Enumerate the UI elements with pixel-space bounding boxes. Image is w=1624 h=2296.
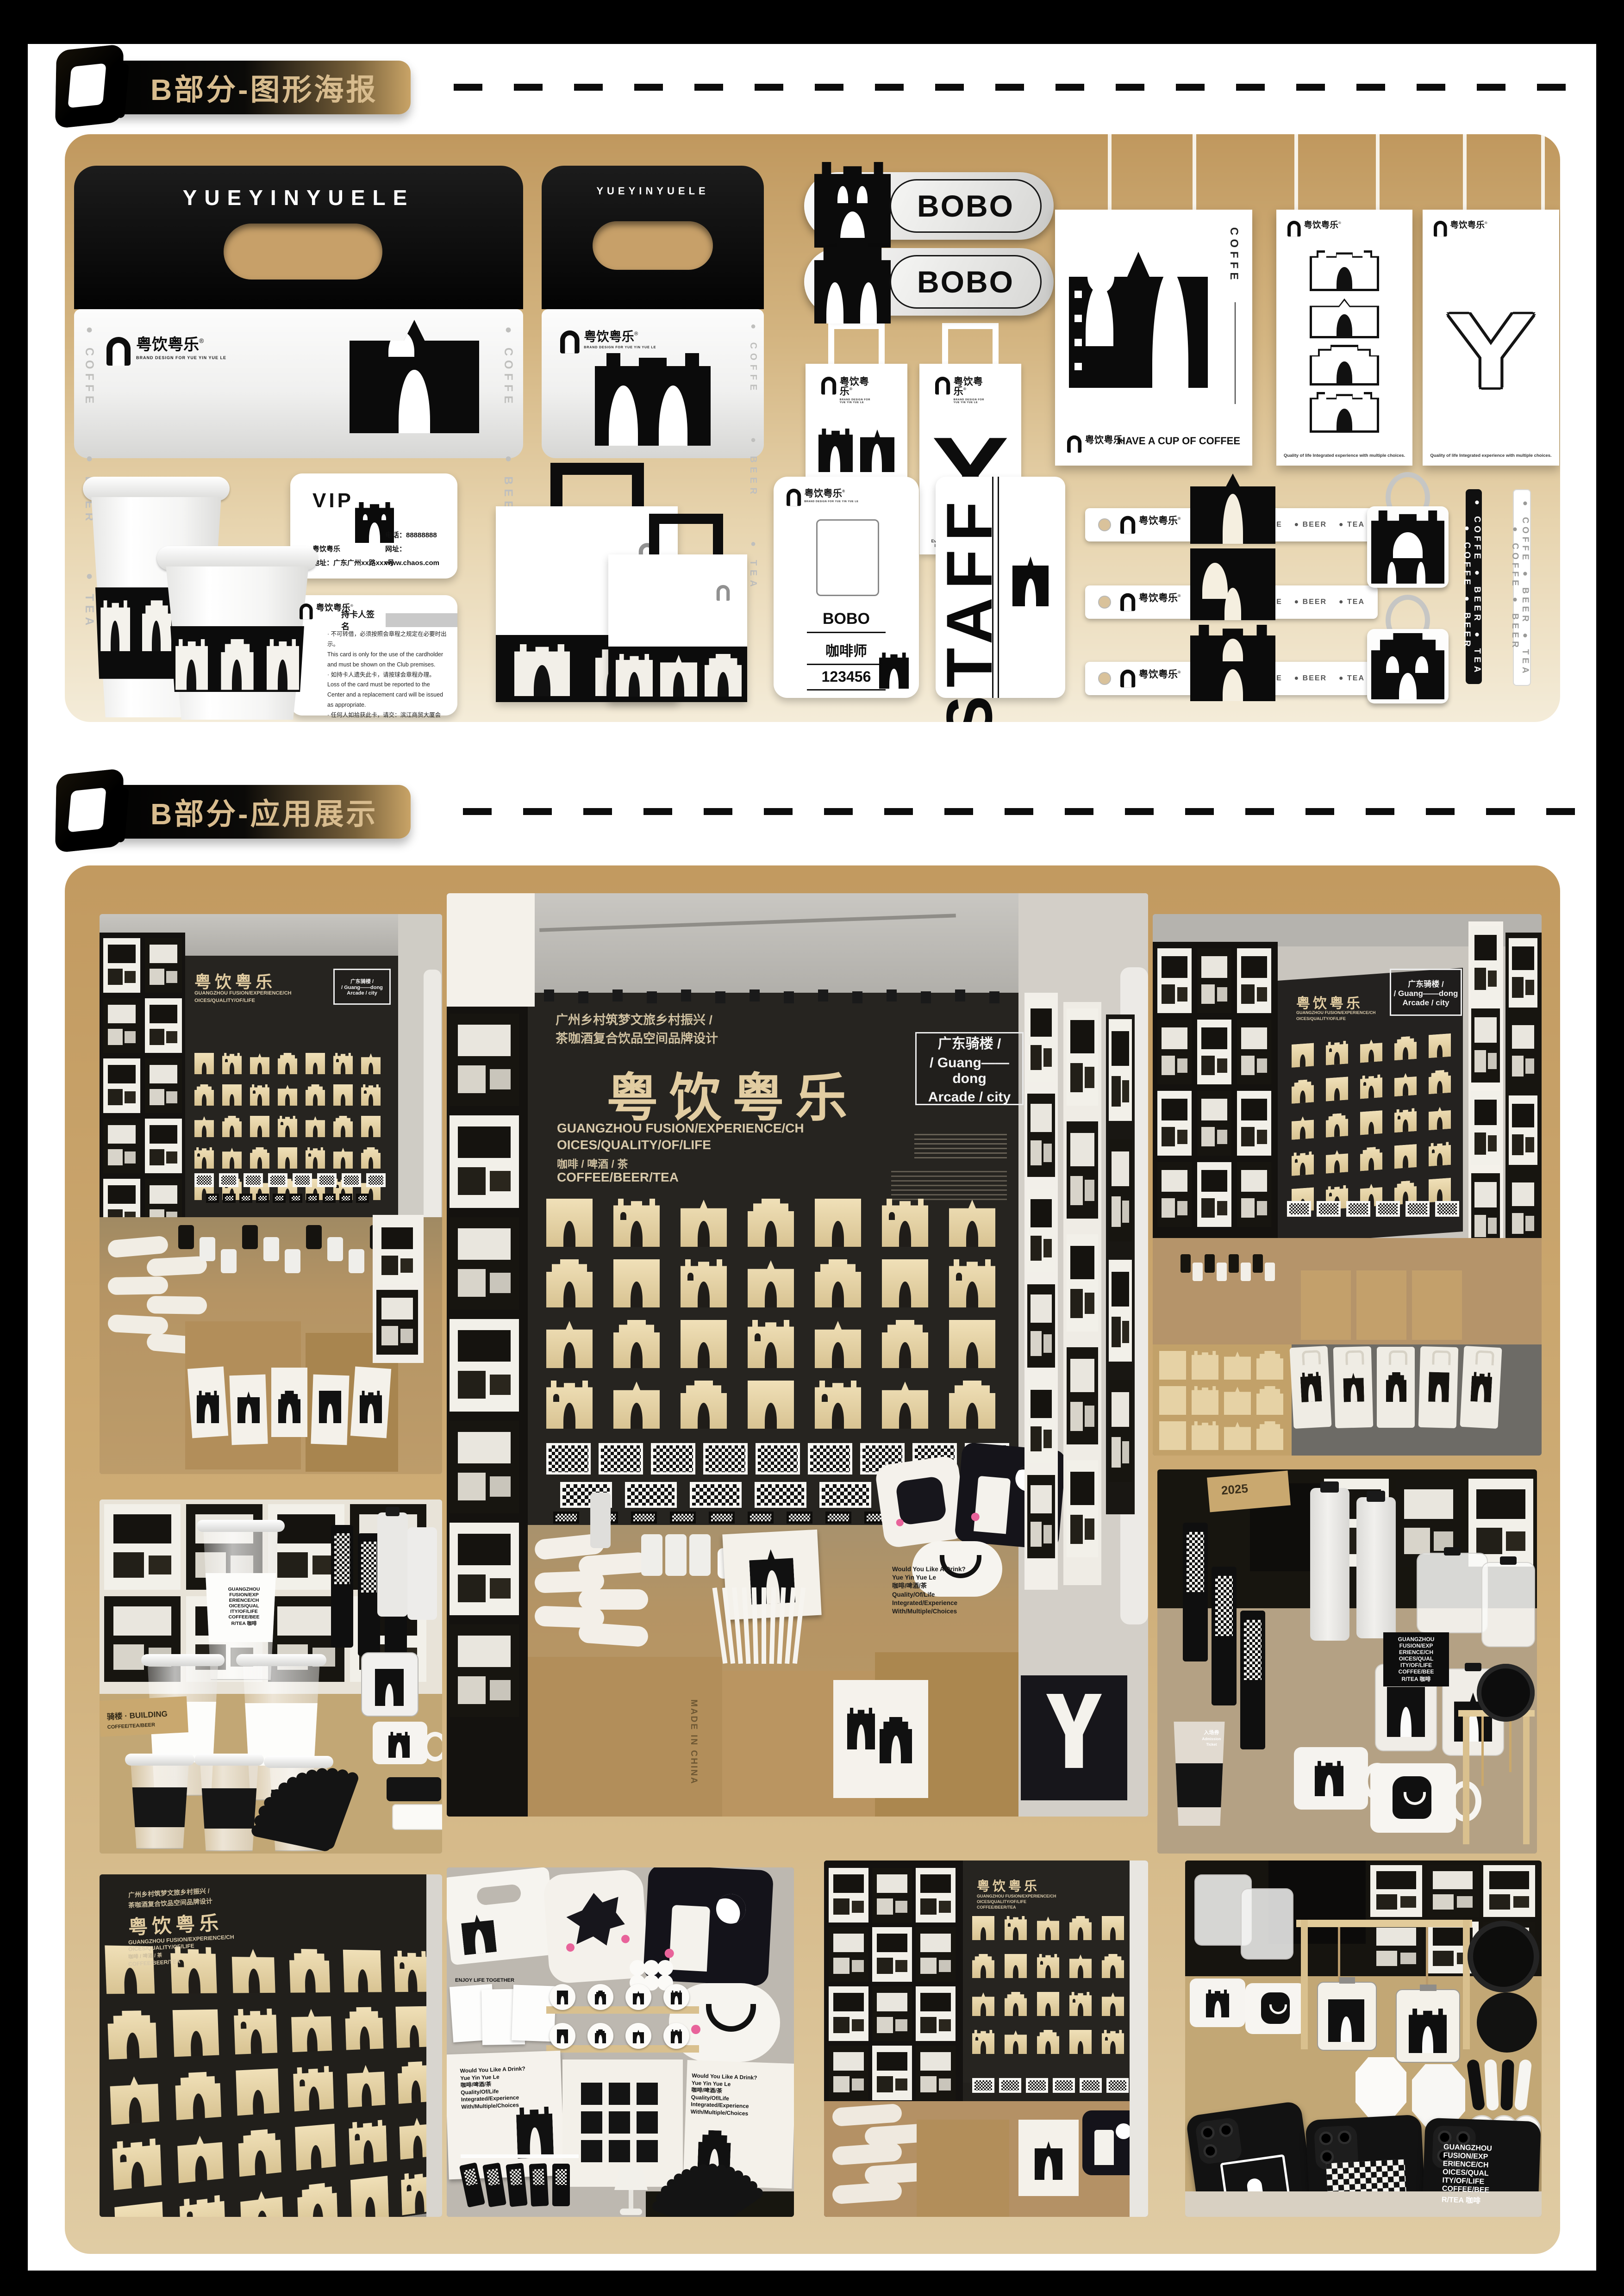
- bookmark: [1183, 1523, 1208, 1661]
- poster-block: [852, 2019, 864, 2031]
- wood-building-tile: [306, 1084, 325, 1106]
- carrier-handle-hole: [593, 221, 713, 270]
- building-shape: [350, 317, 479, 433]
- poster-block: [939, 1960, 951, 1972]
- arch-opening: [561, 2035, 564, 2043]
- arcade-tagbox: 广东骑楼 / / Guang——dong Arcade / city: [1390, 969, 1462, 1016]
- pattern-fill: [242, 1196, 250, 1201]
- arch-opening: [363, 514, 368, 520]
- hanging-string: [1463, 134, 1467, 213]
- mug-mascot: [1245, 1983, 1305, 2034]
- wood-building-tile: [1102, 1954, 1124, 1978]
- pattern-fill: [789, 1514, 810, 1521]
- tile-window: [197, 1153, 200, 1157]
- pattern-card: [787, 1512, 812, 1524]
- wood-building-tile: [291, 2008, 332, 2052]
- registered-mark: ®: [634, 330, 638, 336]
- paper-bag: [1289, 1346, 1331, 1429]
- wood-building-tile: [333, 1116, 353, 1137]
- poster-block: [1525, 1058, 1534, 1074]
- enjoy-card-title: ENJOY LIFE TOGETHER: [455, 1978, 514, 1983]
- pattern-fill: [549, 1445, 588, 1472]
- button-badge: [550, 2023, 575, 2049]
- binder-clip: [818, 989, 828, 1002]
- building-shape: [1312, 394, 1377, 430]
- arch-opening: [673, 672, 684, 697]
- mini-poster: [376, 1220, 418, 1284]
- poster-block: [490, 1069, 511, 1089]
- bookmark: [358, 1533, 380, 1656]
- poster-block: [1404, 1489, 1453, 1519]
- wood-building-tile: [349, 2120, 387, 2165]
- black-plate: [1477, 1992, 1537, 2053]
- pattern-fill: [974, 2080, 992, 2091]
- tile-window: [364, 1090, 366, 1094]
- wood-building-tile: [1394, 1144, 1417, 1169]
- poster-block: [166, 1031, 177, 1043]
- poster-block: [150, 1089, 164, 1105]
- small-product: [349, 1249, 364, 1273]
- carrier-body: 粤饮粤乐® BRAND DESIGN FOR YUE YIN YUE LE ● …: [542, 309, 764, 458]
- wood-building-tile: [972, 1916, 994, 1940]
- poster-block: [833, 2017, 849, 2033]
- twine: [1481, 1717, 1484, 1786]
- bag-handle: [1302, 1350, 1321, 1365]
- poster-block: [277, 1514, 335, 1543]
- wood-piece: [1159, 1421, 1186, 1450]
- tile-window: [620, 1212, 626, 1220]
- poster-block: [1513, 1896, 1529, 1908]
- arch-logo-icon: [935, 377, 950, 394]
- wood-piece: [1159, 1351, 1186, 1380]
- wall-logo: 粤饮粤乐: [977, 1876, 1040, 1895]
- pattern-fill: [275, 1196, 283, 1201]
- small-product: [306, 1225, 322, 1249]
- poster-block: [852, 2078, 864, 2091]
- pattern-fill: [822, 1484, 869, 1506]
- arch-opening: [1341, 2016, 1351, 2042]
- wood-building-tile: [361, 1084, 381, 1106]
- arch-opening: [1393, 532, 1422, 558]
- pattern-card: [808, 1443, 852, 1475]
- building-shape: [879, 653, 909, 689]
- pattern-card: [194, 1173, 214, 1187]
- arch-opening: [1337, 314, 1352, 336]
- tile-window: [1398, 1115, 1400, 1119]
- arch-opening: [1478, 1384, 1485, 1402]
- arch-logo-icon: [1287, 221, 1301, 236]
- tile-arch: [698, 1342, 710, 1368]
- tile-arch: [194, 2155, 207, 2181]
- small-product: [327, 1237, 343, 1261]
- arch-opening: [826, 282, 843, 324]
- mini-poster: [1067, 1347, 1098, 1444]
- bag-handle: [1345, 1350, 1364, 1365]
- carrier-hole: [476, 1884, 521, 1906]
- tile-window: [1073, 1999, 1075, 2003]
- poster-block: [1525, 980, 1534, 995]
- poster-block: [1162, 1056, 1175, 1075]
- poster-block: [895, 1960, 907, 1972]
- wood-building-tile: [1394, 1108, 1417, 1132]
- poster-block: [877, 1874, 907, 1893]
- cup-band: [1175, 1763, 1224, 1807]
- arch-opening: [1387, 562, 1396, 584]
- mini-castle-icon: [1012, 555, 1049, 606]
- cup-print-band: [169, 626, 306, 692]
- poster-block: [1031, 1199, 1052, 1227]
- poster-block: [1512, 946, 1534, 970]
- tile-arch: [361, 2083, 371, 2106]
- drinks-vertical-left: ● COFFE ● BEER ● TEA: [82, 323, 96, 453]
- tile-arch: [256, 2210, 268, 2217]
- mini-poster: [450, 1014, 519, 1106]
- tile-arch: [409, 2025, 419, 2047]
- poster-block: [1474, 1050, 1486, 1072]
- brand-name-cn: 粤饮粤乐: [840, 376, 869, 397]
- section-1-title: B部分-图形海报: [150, 66, 378, 109]
- tile-arch: [306, 2028, 318, 2051]
- vip-contacts: 电话：88888888 网址：www.chaos.com: [385, 529, 457, 570]
- registered-mark: ®: [963, 386, 966, 391]
- poster-block: [1162, 984, 1175, 1004]
- band-hole: [1098, 596, 1111, 609]
- arch-opening: [232, 660, 242, 690]
- wood-building-tile: [1326, 1113, 1348, 1137]
- poster-block: [458, 1167, 486, 1195]
- keychain-acrylic: [1367, 506, 1449, 588]
- arch-opening: [369, 523, 380, 543]
- pattern-fill: [1028, 2080, 1046, 2091]
- wood-building-tile: [295, 2124, 336, 2171]
- poster-rule: [1235, 302, 1236, 404]
- tile-window: [1363, 1082, 1366, 1086]
- arch-logo-icon: [300, 604, 313, 619]
- brand-subline: BRAND DESIGN FOR YUE YIN YUE LE: [584, 345, 656, 349]
- button-badge: [550, 1984, 575, 2010]
- pattern-card: [755, 1482, 806, 1508]
- poster-block: [1241, 1099, 1267, 1121]
- pillow-u: [669, 1905, 710, 1972]
- pattern-fill: [221, 1176, 236, 1185]
- poster-block: [1376, 1951, 1397, 1966]
- tag-line: Arcade / city: [1391, 998, 1461, 1008]
- mini-poster: [1509, 1095, 1537, 1165]
- ticket-cn: 入场券: [1204, 1730, 1219, 1736]
- building-shape: [671, 1991, 682, 2004]
- poster-block: [1474, 935, 1496, 960]
- wood-piece: [1192, 1386, 1218, 1415]
- wood-building-tile: [177, 2133, 223, 2184]
- vip-card-back: 粤饮粤乐® 持卡人签名 · 不可转借，必须按照会章程之规定在必要时出示。 Thi…: [290, 595, 457, 716]
- wood-building-tile: [175, 2071, 221, 2120]
- tile-window: [406, 2184, 411, 2191]
- mini-poster: [1197, 1020, 1231, 1084]
- poster-block: [1177, 987, 1187, 1002]
- tile-arch: [1403, 1155, 1408, 1168]
- pillow-face: [895, 1476, 947, 1526]
- tile-arch: [1013, 2003, 1018, 2016]
- tag-line: / Guang——dong: [1391, 989, 1461, 998]
- wood-building-tile: [1037, 1954, 1059, 1978]
- poster-block: [1476, 1489, 1525, 1519]
- band-hole: [1098, 518, 1111, 531]
- wood-building-tile: [1102, 2030, 1124, 2054]
- wood-post: [1301, 1920, 1308, 2049]
- poster-block: [895, 2019, 907, 2031]
- building-shape: [1387, 1687, 1425, 1737]
- poster-block: [1257, 1058, 1267, 1073]
- crossword-block: [581, 2111, 602, 2134]
- poster-block: [1525, 1216, 1534, 1231]
- mini-poster: [916, 1868, 956, 1923]
- wood-building-tile: [1069, 1916, 1092, 1940]
- crossword-block: [581, 2083, 602, 2105]
- plate-stack: [108, 1276, 169, 1295]
- tile-arch: [1334, 1160, 1340, 1173]
- wood-building-tile: [173, 2010, 219, 2057]
- pattern-fill: [246, 1176, 261, 1185]
- mini-poster: [1157, 1091, 1192, 1156]
- poster-block: [1070, 1402, 1083, 1431]
- wood-piece: [1159, 1386, 1186, 1415]
- tile-arch: [411, 2080, 421, 2103]
- twine: [1426, 1927, 1428, 1987]
- mini-castle-icon: [879, 653, 909, 689]
- wood-building-tile: [882, 1259, 928, 1307]
- mini-poster: [1067, 1234, 1098, 1332]
- pattern-fill: [225, 1196, 233, 1201]
- wood-building-tile: [1102, 1916, 1124, 1940]
- wood-building-tile: [231, 1948, 275, 1993]
- poster-block: [150, 1005, 178, 1023]
- tile-arch: [230, 1157, 235, 1169]
- tile-arch: [1437, 1045, 1443, 1058]
- wood-building-tile: [1069, 1992, 1092, 2016]
- poster-block: [1043, 1334, 1052, 1353]
- tile-arch: [313, 1063, 318, 1074]
- mini-poster: [916, 2046, 956, 2100]
- small-product: [178, 1225, 194, 1249]
- building-shape: [814, 238, 891, 324]
- arch-opening: [1422, 2026, 1434, 2053]
- shelf-product: [1265, 1263, 1275, 1281]
- wood-building-tile: [1292, 1079, 1314, 1104]
- brand-lockup: 粤饮粤乐® BRAND DESIGN FOR YUE YIN YUE LE: [787, 489, 858, 506]
- tile-arch: [341, 1094, 346, 1106]
- arch-opening: [327, 1404, 333, 1423]
- poster-block: [1474, 1215, 1486, 1237]
- tile-arch: [257, 1157, 262, 1169]
- poster-block: [1241, 1198, 1255, 1218]
- mini-poster: [829, 1986, 868, 2041]
- cheek: [566, 1943, 575, 1952]
- wood-building-tile: [815, 1381, 861, 1429]
- poster-block: [1257, 1130, 1267, 1144]
- bottle-cap: [1367, 1491, 1385, 1502]
- poster-block: [108, 1005, 136, 1023]
- poster-wall: [100, 933, 185, 1238]
- plate-stack: [579, 1589, 648, 1610]
- mini-poster: [1157, 1162, 1192, 1227]
- tile-arch: [631, 1282, 643, 1307]
- poster-block: [1201, 1056, 1215, 1075]
- arch-logo-icon: [821, 377, 836, 394]
- poster-block: [125, 1031, 136, 1043]
- tile-arch: [1078, 2003, 1083, 2016]
- poster-block: [113, 1514, 171, 1543]
- tile-arch: [1437, 1153, 1443, 1166]
- pattern-fill: [319, 1176, 334, 1185]
- wood-building-tile: [250, 1147, 269, 1169]
- pattern-card: [256, 1194, 269, 1203]
- tile-arch: [1368, 1085, 1374, 1098]
- poster-block: [1112, 1031, 1129, 1066]
- keychain-2: [1367, 595, 1449, 703]
- tile-arch: [1300, 1054, 1305, 1067]
- poster-block: [1201, 984, 1215, 1004]
- mini-poster: [1509, 1017, 1537, 1086]
- window-dot: [1074, 339, 1082, 346]
- paper-bag: [1333, 1346, 1374, 1428]
- poster-block: [1177, 1130, 1187, 1144]
- poster-block: [1201, 1170, 1227, 1192]
- arch-opening: [245, 1404, 252, 1423]
- poster-block: [1488, 1053, 1497, 1069]
- tile-window: [1105, 2037, 1108, 2041]
- wood-building-tile: [1429, 1142, 1451, 1166]
- poster-wall: [1153, 942, 1278, 1238]
- poster-block: [490, 1578, 511, 1599]
- poster-block: [1031, 1522, 1042, 1547]
- wood-building-tile: [278, 1147, 297, 1169]
- arch-opening: [675, 1996, 678, 2004]
- arch-opening: [473, 1929, 485, 1954]
- poster-block: [1512, 1213, 1524, 1234]
- wood-building-tile: [250, 1084, 269, 1106]
- arch-opening: [1393, 1384, 1399, 1402]
- poster-block: [166, 1151, 177, 1164]
- poster-block: [1162, 956, 1187, 978]
- wood-building-tile: [546, 1199, 593, 1247]
- lattice: [334, 1533, 350, 1584]
- wood-building-tile: [234, 2009, 277, 2054]
- poster-block: [277, 1606, 335, 1636]
- shelf-product: [1253, 1254, 1263, 1273]
- wood-building-tile: [361, 1147, 381, 1169]
- tile-window: [336, 1185, 338, 1188]
- tile-arch: [254, 2150, 266, 2175]
- button-badge: [625, 2023, 651, 2049]
- wood-building-tile: [1394, 1072, 1417, 1096]
- tote-print-text: Would You Like A Drink? Yue Yin Yue Le 咖…: [460, 2066, 526, 2111]
- poster-block: [1512, 1134, 1524, 1155]
- pattern-card: [356, 1194, 369, 1203]
- building-shape: [516, 2106, 554, 2159]
- mini-poster: [145, 1119, 182, 1173]
- poster-block: [1031, 1104, 1052, 1132]
- brand-name-cn: 粤饮粤乐: [1304, 220, 1338, 230]
- tile-arch: [966, 1221, 978, 1247]
- poster-block: [920, 1993, 950, 2011]
- wood-piece: [1192, 1421, 1218, 1450]
- pattern-card: [293, 1173, 312, 1187]
- registered-mark: ®: [1178, 670, 1181, 674]
- arch-opening: [1399, 673, 1417, 699]
- wood-building-tile: [110, 2074, 159, 2125]
- tile-arch: [1013, 1927, 1018, 1940]
- mini-poster: [103, 998, 140, 1053]
- pattern-fill: [692, 1484, 739, 1506]
- building-shape: [660, 654, 697, 697]
- poster-block: [1085, 1067, 1094, 1088]
- arch-logo-icon: [1067, 436, 1081, 453]
- wood-building-tile: [1326, 1076, 1348, 1101]
- tag-line: 广东骑楼 /: [1391, 977, 1461, 989]
- cup-lid: [141, 1654, 225, 1666]
- star-face: [565, 1891, 626, 1950]
- mini-poster: [145, 1058, 182, 1113]
- plate-stack: [146, 1256, 207, 1277]
- poster-block: [1376, 1871, 1416, 1889]
- poster-block: [1241, 956, 1267, 978]
- signature-row: 持卡人签名: [341, 608, 457, 632]
- pattern-card: [599, 1443, 643, 1475]
- tile-arch: [1403, 1083, 1408, 1096]
- pattern-card: [1317, 1201, 1341, 1217]
- wood-building-tile: [107, 2010, 157, 2060]
- poster-block: [1112, 1076, 1121, 1107]
- arch-opening: [637, 2035, 640, 2043]
- pattern-fill: [1289, 1203, 1309, 1214]
- arch-opening: [891, 1736, 901, 1763]
- mini-poster: [1027, 1094, 1055, 1177]
- poster-block: [1122, 1441, 1129, 1463]
- mini-poster: [829, 1927, 868, 1982]
- photo-booth-main: 广州乡村筑梦文旅乡村振兴 / 茶咖酒复合饮品空间品牌设计 粤饮粤乐 GUANGZ…: [447, 893, 1148, 1817]
- poster-block: [1488, 1218, 1497, 1234]
- mini-poster: [1237, 948, 1271, 1013]
- button-badge: [663, 1984, 689, 2010]
- poster-block: [920, 2052, 950, 2071]
- wood-building-tile: [179, 2195, 225, 2217]
- shelf-product: [1181, 1254, 1191, 1273]
- brand-name-cn: 粤饮粤乐: [804, 488, 842, 499]
- tile-arch: [1403, 1119, 1408, 1132]
- tile-arch: [765, 1282, 777, 1307]
- wood-building-tile: [1292, 1151, 1314, 1176]
- wood-building-tile: [278, 1053, 297, 1074]
- building-shape: [1300, 1372, 1322, 1402]
- arch-opening: [381, 514, 386, 520]
- tile-arch: [1368, 1121, 1374, 1134]
- building-shape: [267, 639, 299, 690]
- kraft-en: BUILDING: [129, 1710, 168, 1720]
- tag-print: [487, 2169, 500, 2186]
- poster-block: [920, 2076, 936, 2092]
- poster-block: [458, 1269, 486, 1297]
- pattern-card: [273, 1194, 286, 1203]
- pattern-card: [690, 1482, 742, 1508]
- poster-block: [895, 2078, 907, 2091]
- pattern-fill: [1001, 2080, 1019, 2091]
- arch-opening: [278, 660, 287, 690]
- registered-mark: ®: [1178, 593, 1181, 598]
- flask-cap: [1500, 1556, 1517, 1565]
- poster-block: [458, 1473, 486, 1500]
- mini-poster: [1067, 1460, 1098, 1557]
- kraft-bag: [1412, 1270, 1462, 1340]
